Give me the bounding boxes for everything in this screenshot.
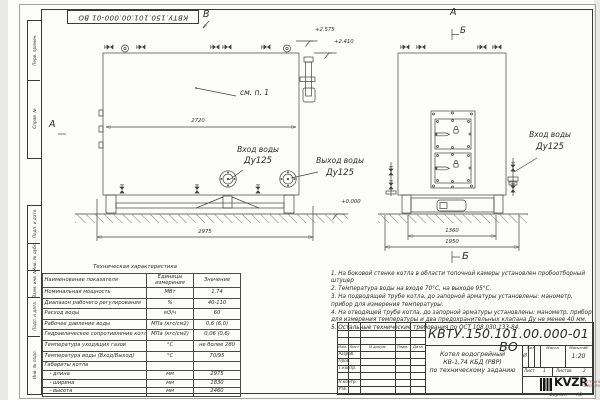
side-inlet-dn: Ду125: [234, 157, 282, 166]
table-header-row: Наименование показателя Единицы измерени…: [43, 274, 241, 288]
view-label-A-front: А: [450, 8, 457, 18]
elevation-0000: +0.000: [341, 200, 361, 206]
table-row: - высотамм2460: [43, 388, 241, 397]
side-outlet-dn: Ду125: [312, 169, 368, 178]
scale-value: 1:20: [565, 354, 592, 361]
strip-label-inv-podl: Инв. № подл.: [27, 336, 41, 393]
kvzr-logo-icon: [540, 378, 552, 391]
sheet-value: 1: [543, 369, 546, 373]
format-value: А3: [576, 393, 582, 398]
note-3: 3. На подводящей трубе котла, до запорно…: [331, 294, 595, 308]
lit-header: Лит.: [522, 346, 540, 350]
note-1: 1. На боковой стенке котла в области топ…: [331, 271, 595, 285]
product-title-line-3: по техническому заданию: [424, 368, 521, 375]
format-label: Формат А3: [549, 394, 582, 399]
section-label-B-bottom: Б: [462, 252, 469, 263]
table-row: Температура уходящих газов°Сне более 280: [43, 340, 241, 351]
elevation-2575: +2.575: [315, 28, 335, 34]
strip-label-perv-primen: Перв. примен.: [27, 20, 41, 80]
dim-1950: 1950: [434, 240, 470, 246]
furnace-doors: [431, 111, 475, 188]
front-inlet-dn: Ду125: [526, 143, 574, 152]
side-inlet-label: Вход воды: [234, 146, 282, 154]
strip-label-vzam-inv: Взам. инв. №: [27, 270, 41, 297]
strip-label-podp-data-1: Подп. и дата: [27, 205, 41, 243]
tech-table-title: Техническая характеристика: [42, 265, 228, 271]
sheets-value: 2: [583, 369, 586, 373]
front-inlet-label: Вход воды: [526, 131, 574, 139]
role-prov: Пров.: [339, 359, 351, 363]
product-title-line-2: КВ-1,74 КБД (РВР): [424, 360, 521, 367]
dim-2720: 2720: [180, 119, 216, 125]
strip-label-sprav-no: Справ. №: [27, 80, 41, 157]
rotated-doc-number-box: КВТУ.150.101.00.000-01 ВО: [67, 10, 199, 25]
side-outlet-label: Выход воды: [312, 157, 368, 165]
table-row: - длинамм2975: [43, 371, 241, 380]
sheet-label: Лист: [524, 369, 535, 373]
rev-header-podp: Подп.: [396, 345, 411, 349]
section-label-B-top: Б: [460, 27, 466, 36]
table-row: - ширинамм1830: [43, 379, 241, 388]
table-row: Гидравлическое сопротивление котлаМПа (к…: [43, 330, 241, 341]
rev-header-izm: Изм.: [338, 345, 349, 349]
note-2: 2. Температура воды на входе 70°С, на вы…: [331, 286, 595, 293]
rev-header-data: Дата: [411, 345, 426, 349]
drawing-sheet: Перв. примен. Справ. № Подп. и дата Инв.…: [0, 0, 600, 400]
rev-header-list: Лист: [349, 345, 361, 349]
sheets-label: Листов: [556, 369, 572, 373]
boiler-side-view: [58, 21, 318, 213]
view-label-B: В: [203, 10, 210, 20]
see-note-callout: см. п. 1: [240, 89, 269, 97]
table-row: Диапазон рабочего регулирования%40-110: [43, 298, 241, 309]
view-label-A-left: А: [49, 120, 56, 130]
ground-hatch: [75, 214, 528, 223]
role-utv: Утв.: [339, 387, 348, 391]
rev-header-ndokum: N докум.: [361, 345, 396, 349]
table-row: Номинальная мощностьМВт1,74: [43, 288, 241, 299]
role-razrab: Разраб.: [339, 352, 355, 356]
water-outlet-flange: [280, 171, 296, 187]
role-tkontr: Т.контр.: [339, 366, 357, 370]
elevation-marks: [296, 41, 345, 220]
dim-2975: 2975: [187, 230, 223, 236]
tech-table: Наименование показателя Единицы измерени…: [42, 273, 241, 397]
water-inlet-flange: [220, 171, 236, 187]
elevation-2410: +2.410: [334, 40, 354, 46]
scale-header: Масштаб: [565, 346, 592, 350]
table-row: Габариты котла: [43, 362, 241, 371]
burner: [437, 200, 466, 211]
strip-label-podp-data-2: Подп. и дата: [27, 297, 41, 336]
product-title-line-1: Котел водогрейный: [424, 352, 521, 359]
flue-outlet: [300, 57, 315, 102]
table-row: Расход водым3/ч60: [43, 309, 241, 320]
role-nkontr: Н.контр.: [339, 380, 357, 384]
table-row: Рабочее давление водыМПа (кгс/см2)0,6 (6…: [43, 319, 241, 330]
strip-label-inv-dubl: Инв. № дубл.: [27, 243, 41, 270]
dim-1360: 1360: [434, 229, 470, 235]
logo-subtitle-2: ЗАВОД РЭП: [584, 384, 600, 388]
mass-header: Масса: [540, 346, 565, 350]
table-row: Температура воды (Вход/Выход)°С70/95: [43, 351, 241, 362]
rotated-doc-number: КВТУ.150.101.00.000-01 ВО: [68, 11, 198, 24]
format-word: Формат: [549, 393, 568, 398]
lit-value: И: [522, 354, 528, 359]
